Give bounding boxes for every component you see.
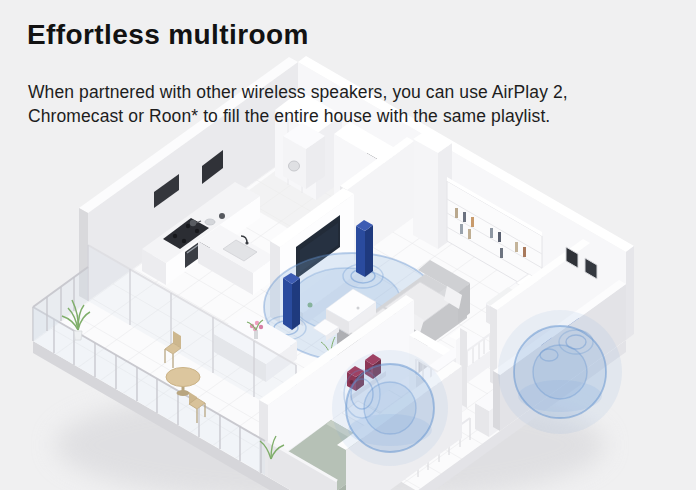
kettle-icon	[219, 213, 225, 219]
sound-wave-nursery	[498, 310, 622, 434]
page-description: When partnered with other wireless speak…	[28, 80, 568, 128]
wall-column	[413, 129, 452, 249]
pot-icon	[190, 220, 196, 226]
floorplan-illustration	[0, 0, 696, 490]
vase-icon	[254, 330, 258, 339]
tower-speaker-right	[356, 220, 373, 277]
bowl-icon	[205, 219, 215, 225]
page-section: Effortless multiroom When partnered with…	[0, 0, 696, 490]
page-title: Effortless multiroom	[27, 20, 309, 51]
sound-wave-bedroom	[332, 350, 448, 466]
description-line-1: When partnered with other wireless speak…	[28, 80, 568, 104]
tower-speaker-left	[283, 273, 300, 330]
description-line-2: Chromecast or Roon* to fill the entire h…	[28, 104, 568, 128]
washer-icon	[283, 123, 325, 189]
